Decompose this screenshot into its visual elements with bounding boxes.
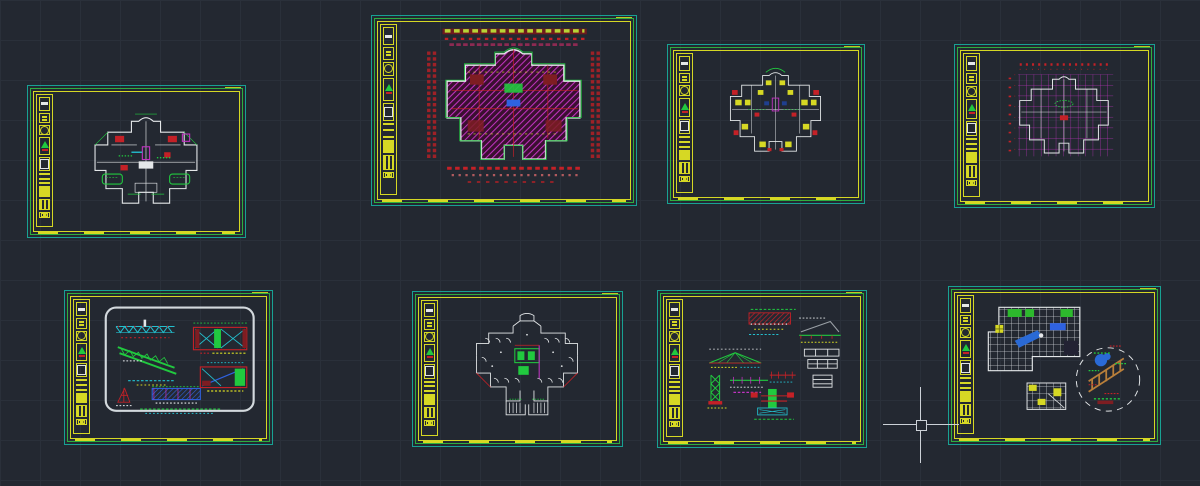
- logo-base-icon: [79, 355, 85, 357]
- titleblock-cell-seal: [669, 331, 680, 342]
- titleblock-cell-title: [39, 97, 50, 111]
- frame-bottom-ticks: [965, 202, 1144, 204]
- titleblock-dash-text: [960, 404, 971, 416]
- title-block: [963, 53, 980, 197]
- title-block: [380, 24, 397, 195]
- drawing-sheet-7[interactable]: [657, 290, 867, 448]
- plan-graphic-8: [976, 295, 1152, 423]
- titleblock-h-glyph: [966, 180, 977, 186]
- logo-triangle-icon: [426, 348, 434, 355]
- plan-graphic-5: [92, 299, 264, 424]
- titleblock-highlight: [424, 394, 435, 404]
- titleblock-cell-seal: [424, 332, 435, 342]
- titleblock-bars: [669, 381, 680, 393]
- titleblock-dash-text: [76, 405, 87, 417]
- titleblock-cell-seal: [383, 62, 394, 75]
- plan-graphic-4: [982, 53, 1146, 172]
- logo-triangle-icon: [968, 104, 976, 111]
- titleblock-cell-seal: [679, 85, 690, 96]
- frame-bottom-ticks: [668, 442, 856, 444]
- title-block: [666, 299, 683, 437]
- drawing-sheet-3[interactable]: [667, 44, 865, 204]
- titleblock-h-glyph: [383, 172, 394, 178]
- plan-graphic-1: [55, 94, 237, 226]
- logo-base-icon: [672, 356, 678, 358]
- logo-triangle-icon: [962, 344, 970, 351]
- logo-base-icon: [963, 352, 969, 354]
- drawing-sheet-4[interactable]: [954, 44, 1155, 208]
- titleblock-bars: [424, 381, 435, 393]
- titleblock-highlight: [39, 186, 50, 196]
- title-block: [73, 299, 90, 434]
- logo-base-icon: [969, 112, 975, 114]
- titleblock-logo: [424, 344, 435, 362]
- logo-triangle-icon: [41, 141, 49, 148]
- titleblock-bars: [966, 138, 977, 150]
- title-block: [36, 94, 53, 227]
- titleblock-logo: [383, 78, 394, 101]
- titleblock-stamp-box: [679, 119, 690, 134]
- drawing-sheet-5[interactable]: [64, 290, 273, 445]
- titleblock-cell-title: [960, 298, 971, 313]
- titleblock-cell-title: [669, 302, 680, 317]
- titleblock-h-glyph: [679, 176, 690, 182]
- titleblock-cell-title: [383, 27, 394, 45]
- frame-bottom-ticks: [423, 441, 612, 443]
- titleblock-cell-text: [39, 113, 50, 123]
- plan-graphic-6: [440, 300, 614, 426]
- titleblock-stamp-box: [960, 360, 971, 375]
- titleblock-stamp-box: [383, 103, 394, 121]
- titleblock-cell-title: [424, 303, 435, 317]
- drawing-sheet-1[interactable]: [27, 85, 246, 238]
- titleblock-highlight: [76, 393, 87, 403]
- titleblock-cell-text: [383, 47, 394, 60]
- titleblock-stamp-box: [424, 364, 435, 378]
- titleblock-logo: [76, 343, 87, 361]
- titleblock-cell-text: [966, 73, 977, 84]
- titleblock-highlight: [960, 391, 971, 402]
- title-block: [957, 295, 974, 434]
- drawing-sheet-2[interactable]: [371, 15, 637, 206]
- title-block: [421, 300, 438, 436]
- plan-graphic-7: [685, 299, 858, 424]
- title-block: [676, 53, 693, 193]
- titleblock-cell-seal: [76, 331, 87, 341]
- titleblock-bars: [383, 123, 394, 138]
- titleblock-highlight: [966, 152, 977, 163]
- titleblock-h-glyph: [960, 418, 971, 424]
- logo-base-icon: [42, 149, 48, 151]
- titleblock-logo: [669, 344, 680, 362]
- titleblock-cell-seal: [960, 327, 971, 338]
- drawing-sheet-8[interactable]: [948, 286, 1161, 445]
- titleblock-cell-text: [424, 319, 435, 329]
- titleblock-h-glyph: [669, 421, 680, 427]
- titleblock-stamp-box: [76, 363, 87, 377]
- plan-graphic-3: [695, 53, 856, 170]
- titleblock-cell-text: [76, 318, 87, 328]
- frame-bottom-ticks: [38, 232, 235, 234]
- logo-base-icon: [386, 92, 392, 94]
- titleblock-stamp-box: [39, 157, 50, 171]
- titleblock-h-glyph: [39, 212, 50, 218]
- titleblock-h-glyph: [424, 420, 435, 426]
- plan-graphic-2: [399, 24, 628, 190]
- crosshair-vertical-line: [920, 387, 921, 463]
- logo-base-icon: [682, 111, 688, 113]
- frame-bottom-ticks: [75, 439, 262, 441]
- titleblock-logo: [679, 98, 690, 117]
- titleblock-highlight: [679, 150, 690, 161]
- drawing-sheet-6[interactable]: [412, 291, 623, 447]
- titleblock-bars: [679, 136, 690, 148]
- titleblock-logo: [966, 99, 977, 118]
- titleblock-logo: [39, 137, 50, 155]
- logo-triangle-icon: [681, 103, 689, 110]
- titleblock-cell-text: [679, 73, 690, 84]
- titleblock-cell-title: [679, 56, 690, 71]
- titleblock-stamp-box: [966, 121, 977, 136]
- titleblock-bars: [960, 377, 971, 389]
- titleblock-stamp-box: [669, 364, 680, 379]
- titleblock-h-glyph: [76, 419, 87, 425]
- titleblock-dash-text: [669, 407, 680, 419]
- titleblock-cell-title: [76, 302, 87, 316]
- titleblock-cell-text: [669, 319, 680, 330]
- logo-triangle-icon: [385, 84, 393, 91]
- titleblock-dash-text: [679, 162, 690, 174]
- titleblock-cell-seal: [966, 86, 977, 97]
- frame-bottom-ticks: [678, 198, 854, 200]
- titleblock-cell-seal: [39, 125, 50, 135]
- logo-triangle-icon: [78, 347, 86, 354]
- titleblock-bars: [76, 379, 87, 391]
- titleblock-cell-text: [960, 315, 971, 326]
- logo-base-icon: [427, 356, 433, 358]
- titleblock-dash-text: [966, 165, 977, 177]
- frame-bottom-ticks: [959, 439, 1150, 441]
- titleblock-logo: [960, 340, 971, 359]
- titleblock-cell-title: [966, 56, 977, 71]
- crosshair-pickbox: [916, 420, 927, 431]
- titleblock-dash-text: [424, 407, 435, 419]
- titleblock-dash-text: [39, 199, 50, 210]
- frame-bottom-ticks: [382, 200, 626, 202]
- titleblock-bars: [39, 173, 50, 184]
- logo-triangle-icon: [671, 348, 679, 355]
- titleblock-highlight: [383, 140, 394, 153]
- titleblock-highlight: [669, 394, 680, 405]
- titleblock-dash-text: [383, 155, 394, 170]
- cad-model-space[interactable]: [0, 0, 1200, 486]
